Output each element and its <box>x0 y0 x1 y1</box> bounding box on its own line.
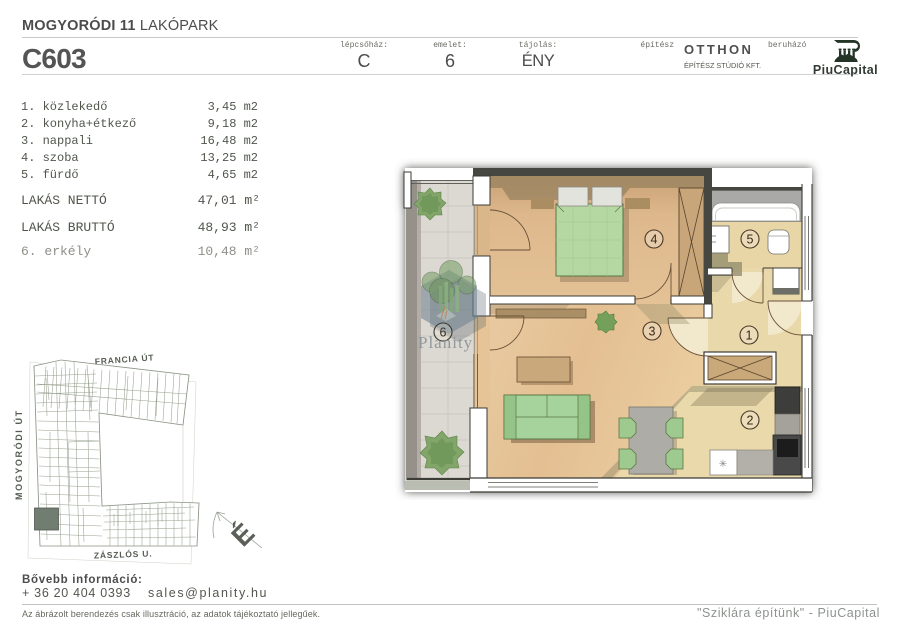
svg-text:MOGYORÓDI ÚT: MOGYORÓDI ÚT <box>13 409 24 500</box>
svg-text:1: 1 <box>746 329 753 343</box>
svg-text:✳: ✳ <box>719 459 727 470</box>
svg-text:4: 4 <box>651 233 658 247</box>
svg-text:5: 5 <box>747 233 754 247</box>
svg-text:FRANCIA ÚT: FRANCIA ÚT <box>94 351 154 366</box>
svg-text:3: 3 <box>649 325 656 339</box>
svg-text:2: 2 <box>747 414 754 428</box>
svg-text:ZÁSZLÓS U.: ZÁSZLÓS U. <box>94 547 153 560</box>
svg-text:Planity: Planity <box>418 333 473 352</box>
